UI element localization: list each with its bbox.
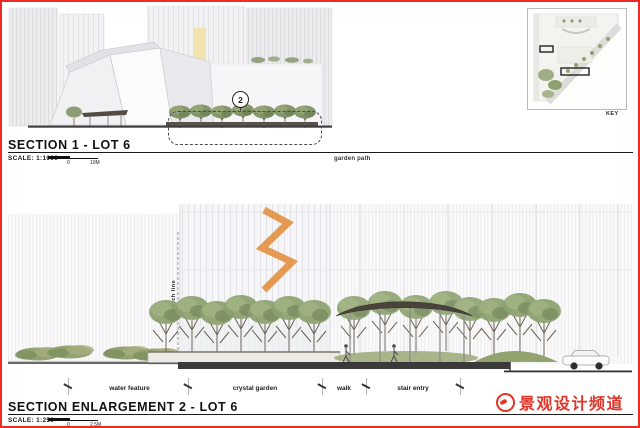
scale-max: 2.5M (90, 422, 101, 428)
watermark: 景观设计频道 (494, 390, 626, 414)
zone-label-stair-entry: stair entry (366, 385, 460, 392)
section1-title-rule (8, 152, 633, 154)
section1-scale-bar: 0 10M (48, 154, 104, 166)
section-marker-2: 2 (232, 91, 249, 108)
zone-label-water-feature: water feature (71, 385, 188, 392)
watermark-text: 景观设计频道 (519, 390, 624, 414)
keymap-plan (528, 9, 624, 107)
keymap-label: KEY (606, 111, 619, 117)
keymap-box (527, 8, 627, 110)
zone-label-crystal-garden: crystal garden (188, 385, 322, 392)
background-facades (8, 204, 632, 364)
section2-drawing: match line (8, 204, 632, 378)
marker-number: 2 (238, 95, 243, 105)
scale-zero: 0 (67, 160, 70, 166)
enlargement-area-marker (168, 111, 322, 145)
scale-max: 10M (90, 160, 100, 166)
section2-scale-bar: 0 2.5M (48, 416, 104, 428)
section2-title: SECTION ENLARGEMENT 2 - LOT 6 (8, 400, 238, 414)
scale-zero: 0 (67, 422, 70, 428)
zone-label-walk: walk (322, 385, 366, 392)
garden-path-annotation: garden path (334, 156, 371, 162)
watermark-logo-icon (496, 393, 515, 412)
section1-title: SECTION 1 - LOT 6 (8, 138, 131, 152)
